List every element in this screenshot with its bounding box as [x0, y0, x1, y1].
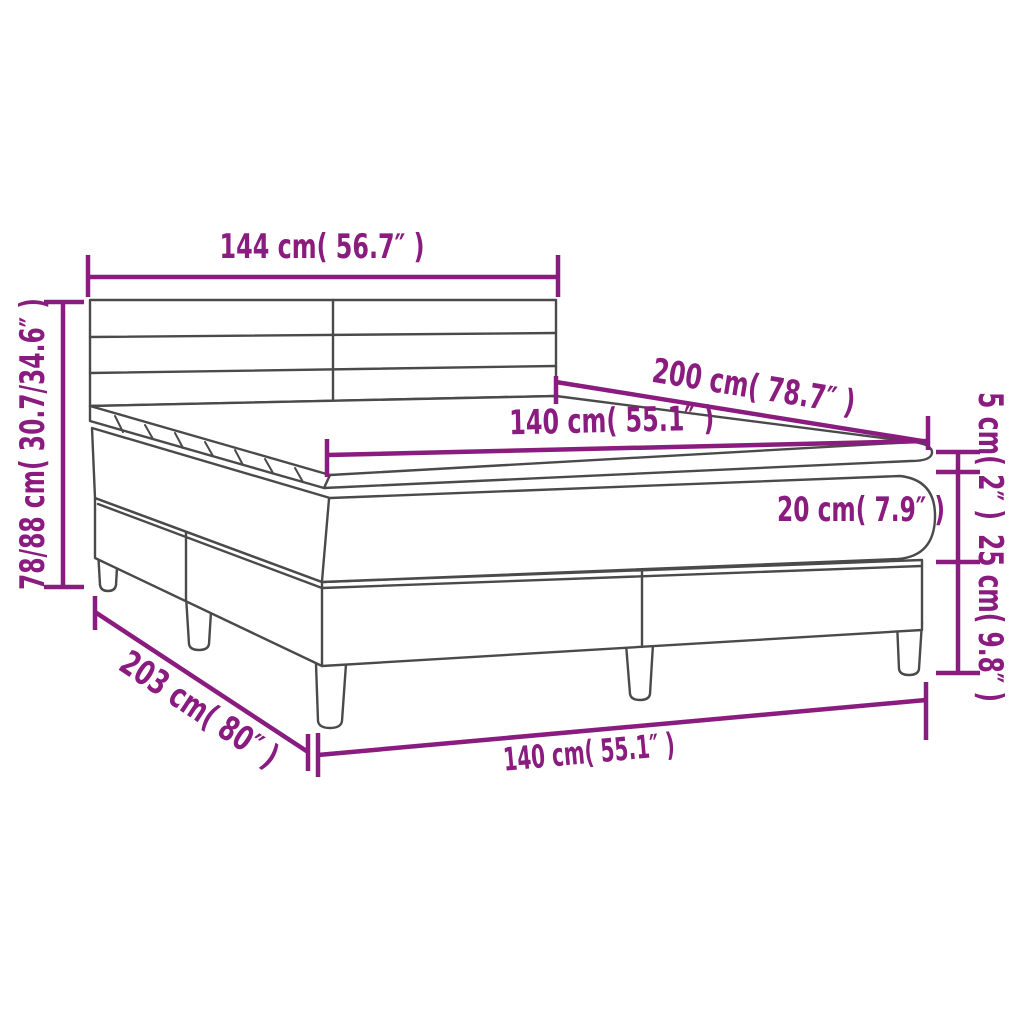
label-total-height: 78/88 cm( 30.7/34.6″ )	[13, 298, 53, 590]
label-mattress-width: 140 cm( 55.1″ )	[509, 399, 715, 444]
bed-leg-front-corner	[316, 664, 346, 728]
label-topper-height: 5 cm( 2″ )	[970, 392, 1010, 520]
label-headboard-width: 144 cm( 56.7″ )	[220, 227, 425, 267]
label-mattress-height: 20 cm( 7.9″ )	[777, 490, 945, 530]
bed-leg-front-middle	[626, 644, 653, 700]
bed-dimension-diagram: 144 cm( 56.7″ ) 78/88 cm( 30.7/34.6″ ) 2…	[0, 0, 1024, 1024]
label-base-height: 25 cm( 9.8″ )	[970, 534, 1010, 702]
headboard	[90, 300, 556, 406]
headboard-outline	[90, 300, 556, 406]
label-total-length: 203 cm( 80″ )	[112, 643, 286, 777]
diagram-canvas: 144 cm( 56.7″ ) 78/88 cm( 30.7/34.6″ ) 2…	[0, 0, 1024, 1024]
label-base-width: 140 cm( 55.1″ )	[502, 725, 677, 778]
